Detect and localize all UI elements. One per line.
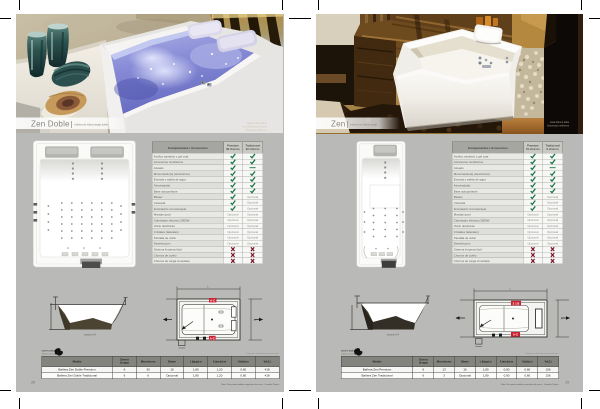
svg-text:Opcional: Opcional bbox=[459, 374, 471, 378]
svg-text:Accesorios recubiertos: Accesorios recubiertos bbox=[454, 160, 484, 164]
svg-text:Opcional: Opcional bbox=[527, 241, 538, 245]
svg-text:0,60: 0,60 bbox=[240, 374, 246, 378]
svg-text:29: 29 bbox=[566, 381, 570, 385]
svg-text:Chorros de carga inmediata: Chorros de carga inmediata bbox=[454, 259, 490, 263]
svg-text:22 chorros: 22 chorros bbox=[246, 147, 260, 151]
svg-text:Diagrama: dimensiones aproxima: Diagrama: dimensiones aproximadas bbox=[246, 353, 279, 355]
svg-text:Opcional: Opcional bbox=[547, 212, 558, 216]
svg-text:Opcional: Opcional bbox=[227, 212, 238, 216]
svg-text:Pantalla de vidrio: Pantalla de vidrio bbox=[454, 236, 477, 240]
svg-text:Opcional: Opcional bbox=[227, 218, 238, 222]
svg-text:Opcional: Opcional bbox=[547, 218, 558, 222]
svg-text:30: 30 bbox=[147, 368, 151, 372]
svg-text:Base autoportante: Base autoportante bbox=[454, 189, 478, 193]
svg-text:Bañera Zen Premium: Bañera Zen Premium bbox=[363, 368, 392, 372]
svg-text:51 chorros: 51 chorros bbox=[526, 147, 540, 151]
svg-text:Opcional: Opcional bbox=[527, 230, 538, 234]
svg-text:Opcional: Opcional bbox=[547, 224, 558, 228]
svg-text:418: 418 bbox=[265, 368, 270, 372]
svg-text:de agua: de agua bbox=[120, 363, 129, 365]
svg-text:Pantalla de vidrio: Pantalla de vidrio bbox=[154, 236, 177, 240]
svg-text:Desinfección: Desinfección bbox=[454, 242, 471, 246]
svg-text:Componentes / Accesorios: Componentes / Accesorios bbox=[468, 146, 508, 150]
svg-text:Opcional: Opcional bbox=[547, 236, 558, 240]
svg-text:Opcional: Opcional bbox=[166, 374, 178, 378]
svg-text:Blower: Blower bbox=[154, 195, 163, 199]
svg-text:Sistema limpieza fácil: Sistema limpieza fácil bbox=[454, 248, 482, 252]
svg-text:Opcional: Opcional bbox=[227, 230, 238, 234]
svg-text:Opcional: Opcional bbox=[547, 230, 558, 234]
svg-text:A-C: A-C bbox=[210, 336, 216, 340]
svg-text:H (alto) m: H (alto) m bbox=[238, 361, 249, 364]
svg-text:Chorros de cuello: Chorros de cuello bbox=[454, 253, 477, 257]
svg-text:Opcional: Opcional bbox=[247, 212, 258, 216]
svg-text:Zen: Zen bbox=[331, 119, 345, 128]
svg-text:Chorros: Chorros bbox=[419, 360, 429, 362]
svg-text:156: 156 bbox=[546, 374, 551, 378]
svg-text:16: 16 bbox=[170, 368, 174, 372]
svg-text:Monomando(s) (electrónico): Monomando(s) (electrónico) bbox=[454, 172, 490, 176]
svg-text:Desinfección: Desinfección bbox=[154, 242, 171, 246]
svg-text:13: 13 bbox=[442, 368, 446, 372]
svg-text:Manijas (par): Manijas (par) bbox=[154, 213, 171, 217]
svg-text:bañera de hidromasaje: bañera de hidromasaje bbox=[351, 122, 378, 126]
svg-text:Iluminación cromoterapia: Iluminación cromoterapia bbox=[454, 207, 487, 211]
svg-text:Cristales (laterales): Cristales (laterales) bbox=[154, 230, 179, 234]
svg-text:Bañera Zen Doble Premium: Bañera Zen Doble Premium bbox=[58, 368, 96, 372]
svg-text:2 1/2: 2 1/2 bbox=[513, 302, 520, 306]
svg-text:A (ancho) m: A (ancho) m bbox=[213, 361, 226, 364]
svg-text:Opcional: Opcional bbox=[527, 212, 538, 216]
svg-text:418: 418 bbox=[265, 374, 270, 378]
svg-text:L: L bbox=[207, 286, 209, 289]
svg-text:sección A-A: sección A-A bbox=[387, 334, 400, 337]
svg-text:Blower: Blower bbox=[461, 362, 469, 364]
svg-text:Cascada: Cascada bbox=[154, 201, 166, 205]
svg-text:Vidrio deslizante: Vidrio deslizante bbox=[154, 224, 176, 228]
svg-text:28: 28 bbox=[31, 381, 35, 385]
svg-text:H (alto) m: H (alto) m bbox=[522, 361, 533, 364]
svg-text:|: | bbox=[347, 120, 349, 129]
svg-text:Opcional: Opcional bbox=[227, 224, 238, 228]
svg-text:Acrílico sanitario o gel coat: Acrílico sanitario o gel coat bbox=[454, 154, 489, 158]
svg-text:Opcional: Opcional bbox=[547, 201, 558, 205]
svg-text:Opcional: Opcional bbox=[527, 224, 538, 228]
svg-text:Aireado: Aireado bbox=[154, 166, 164, 170]
svg-text:Vol (L): Vol (L) bbox=[545, 362, 552, 364]
svg-text:1,80: 1,80 bbox=[193, 368, 199, 372]
svg-text:0,60: 0,60 bbox=[240, 368, 246, 372]
svg-text:Vol (L): Vol (L) bbox=[264, 362, 271, 364]
svg-text:Zen Doble: Zen Doble bbox=[31, 119, 70, 128]
svg-text:156: 156 bbox=[546, 368, 551, 372]
svg-text:Cascada: Cascada bbox=[454, 201, 466, 205]
svg-text:48 chorros: 48 chorros bbox=[226, 147, 240, 151]
svg-text:Opcional: Opcional bbox=[247, 218, 258, 222]
svg-text:0,90: 0,90 bbox=[504, 368, 510, 372]
svg-text:Blower: Blower bbox=[168, 362, 176, 364]
svg-text:Opcional: Opcional bbox=[527, 236, 538, 240]
svg-text:Opcional: Opcional bbox=[547, 241, 558, 245]
svg-text:Opcional: Opcional bbox=[247, 201, 258, 205]
svg-text:0,60: 0,60 bbox=[524, 368, 530, 372]
svg-text:Opcional: Opcional bbox=[527, 218, 538, 222]
svg-text:|: | bbox=[71, 120, 73, 129]
svg-text:Tradicional: Tradicional bbox=[546, 144, 560, 148]
svg-text:Chorros de cuello: Chorros de cuello bbox=[154, 253, 177, 257]
svg-text:wellness collection: wellness collection bbox=[341, 352, 355, 355]
svg-text:de agua: de agua bbox=[419, 363, 428, 365]
svg-text:bañera de hidromasaje doble: bañera de hidromasaje doble bbox=[75, 122, 109, 126]
svg-text:Bañera Zen Doble Tradicional: Bañera Zen Doble Tradicional bbox=[57, 374, 97, 378]
svg-text:Acrílico sanitario o gel coat: Acrílico sanitario o gel coat bbox=[154, 154, 189, 158]
svg-text:Premium: Premium bbox=[527, 144, 539, 148]
svg-text:Opcional: Opcional bbox=[247, 195, 258, 199]
svg-text:Modelo: Modelo bbox=[73, 361, 82, 364]
svg-text:Opcional: Opcional bbox=[247, 230, 258, 234]
svg-text:Modelo: Modelo bbox=[373, 361, 382, 364]
svg-text:Calentador eléctrico 3000W: Calentador eléctrico 3000W bbox=[154, 218, 190, 222]
svg-text:Entrada y salida de agua: Entrada y salida de agua bbox=[154, 178, 186, 182]
svg-text:0,60: 0,60 bbox=[524, 374, 530, 378]
svg-text:Nota: Para pedir medidas espec: Nota: Para pedir medidas especiales de a… bbox=[501, 383, 559, 386]
svg-text:Opcional: Opcional bbox=[247, 207, 258, 211]
svg-text:A-C: A-C bbox=[210, 299, 216, 303]
svg-text:Vidrio deslizante: Vidrio deslizante bbox=[454, 224, 476, 228]
svg-text:fotografía ambiente: fotografía ambiente bbox=[245, 129, 267, 132]
svg-text:Sistema limpieza fácil: Sistema limpieza fácil bbox=[154, 248, 182, 252]
svg-text:Microchorros: Microchorros bbox=[437, 362, 452, 364]
svg-text:L (largo) m: L (largo) m bbox=[480, 362, 492, 364]
svg-text:1,20: 1,20 bbox=[217, 374, 223, 378]
svg-text:1,20: 1,20 bbox=[217, 368, 223, 372]
svg-text:Tradicional: Tradicional bbox=[246, 144, 260, 148]
svg-text:Opcional: Opcional bbox=[547, 207, 558, 211]
svg-text:Iluminación cromoterapia: Iluminación cromoterapia bbox=[154, 207, 187, 211]
svg-text:Microchorros: Microchorros bbox=[141, 362, 156, 364]
svg-text:Blower: Blower bbox=[454, 195, 463, 199]
svg-text:Opcional: Opcional bbox=[247, 224, 258, 228]
svg-text:Cristales (laterales): Cristales (laterales) bbox=[454, 230, 479, 234]
svg-text:0,90: 0,90 bbox=[504, 374, 510, 378]
svg-text:Manijas (par): Manijas (par) bbox=[454, 213, 471, 217]
svg-text:Calentador eléctrico 3000W: Calentador eléctrico 3000W bbox=[454, 218, 490, 222]
svg-text:Base autoportante: Base autoportante bbox=[154, 189, 178, 193]
svg-text:Premium: Premium bbox=[227, 144, 239, 148]
svg-text:Diagrama: dimensiones aproxima: Diagrama: dimensiones aproximadas bbox=[525, 353, 558, 355]
svg-text:16: 16 bbox=[463, 368, 467, 372]
svg-text:A-C: A-C bbox=[513, 333, 519, 337]
svg-text:Opcional: Opcional bbox=[247, 236, 258, 240]
svg-text:L: L bbox=[509, 288, 511, 291]
svg-text:9 chorros: 9 chorros bbox=[546, 147, 559, 151]
svg-text:Monomando(s) (electrónico): Monomando(s) (electrónico) bbox=[154, 172, 190, 176]
svg-text:A (ancho) m: A (ancho) m bbox=[500, 361, 513, 364]
svg-text:Opcional: Opcional bbox=[227, 236, 238, 240]
svg-text:Componentes / Accesorios: Componentes / Accesorios bbox=[168, 146, 208, 150]
svg-text:Chorros de carga inmediata: Chorros de carga inmediata bbox=[154, 259, 190, 263]
svg-text:Bañera Zen Tradicional: Bañera Zen Tradicional bbox=[361, 374, 392, 378]
svg-text:L (largo) m: L (largo) m bbox=[190, 362, 202, 364]
svg-text:Entrada y salida de agua: Entrada y salida de agua bbox=[454, 178, 486, 182]
svg-text:wellness collection: wellness collection bbox=[42, 352, 56, 355]
svg-text:showroom wellness: showroom wellness bbox=[547, 125, 570, 128]
svg-text:Aireado: Aireado bbox=[454, 166, 464, 170]
svg-text:Accesorios recubiertos: Accesorios recubiertos bbox=[154, 160, 184, 164]
svg-text:sección A-A: sección A-A bbox=[84, 334, 97, 337]
svg-text:Nota: Para pedir medidas espec: Nota: Para pedir medidas especiales de a… bbox=[222, 383, 280, 386]
svg-text:Opcional: Opcional bbox=[227, 241, 238, 245]
svg-text:1,80: 1,80 bbox=[193, 374, 199, 378]
svg-text:1,80: 1,80 bbox=[483, 374, 489, 378]
svg-text:Chorros: Chorros bbox=[120, 360, 130, 362]
svg-text:Opcional: Opcional bbox=[547, 195, 558, 199]
svg-text:Almohada(s): Almohada(s) bbox=[454, 184, 470, 188]
svg-text:Opcional: Opcional bbox=[247, 241, 258, 245]
svg-text:Almohada(s): Almohada(s) bbox=[154, 184, 170, 188]
svg-text:1,80: 1,80 bbox=[483, 368, 489, 372]
